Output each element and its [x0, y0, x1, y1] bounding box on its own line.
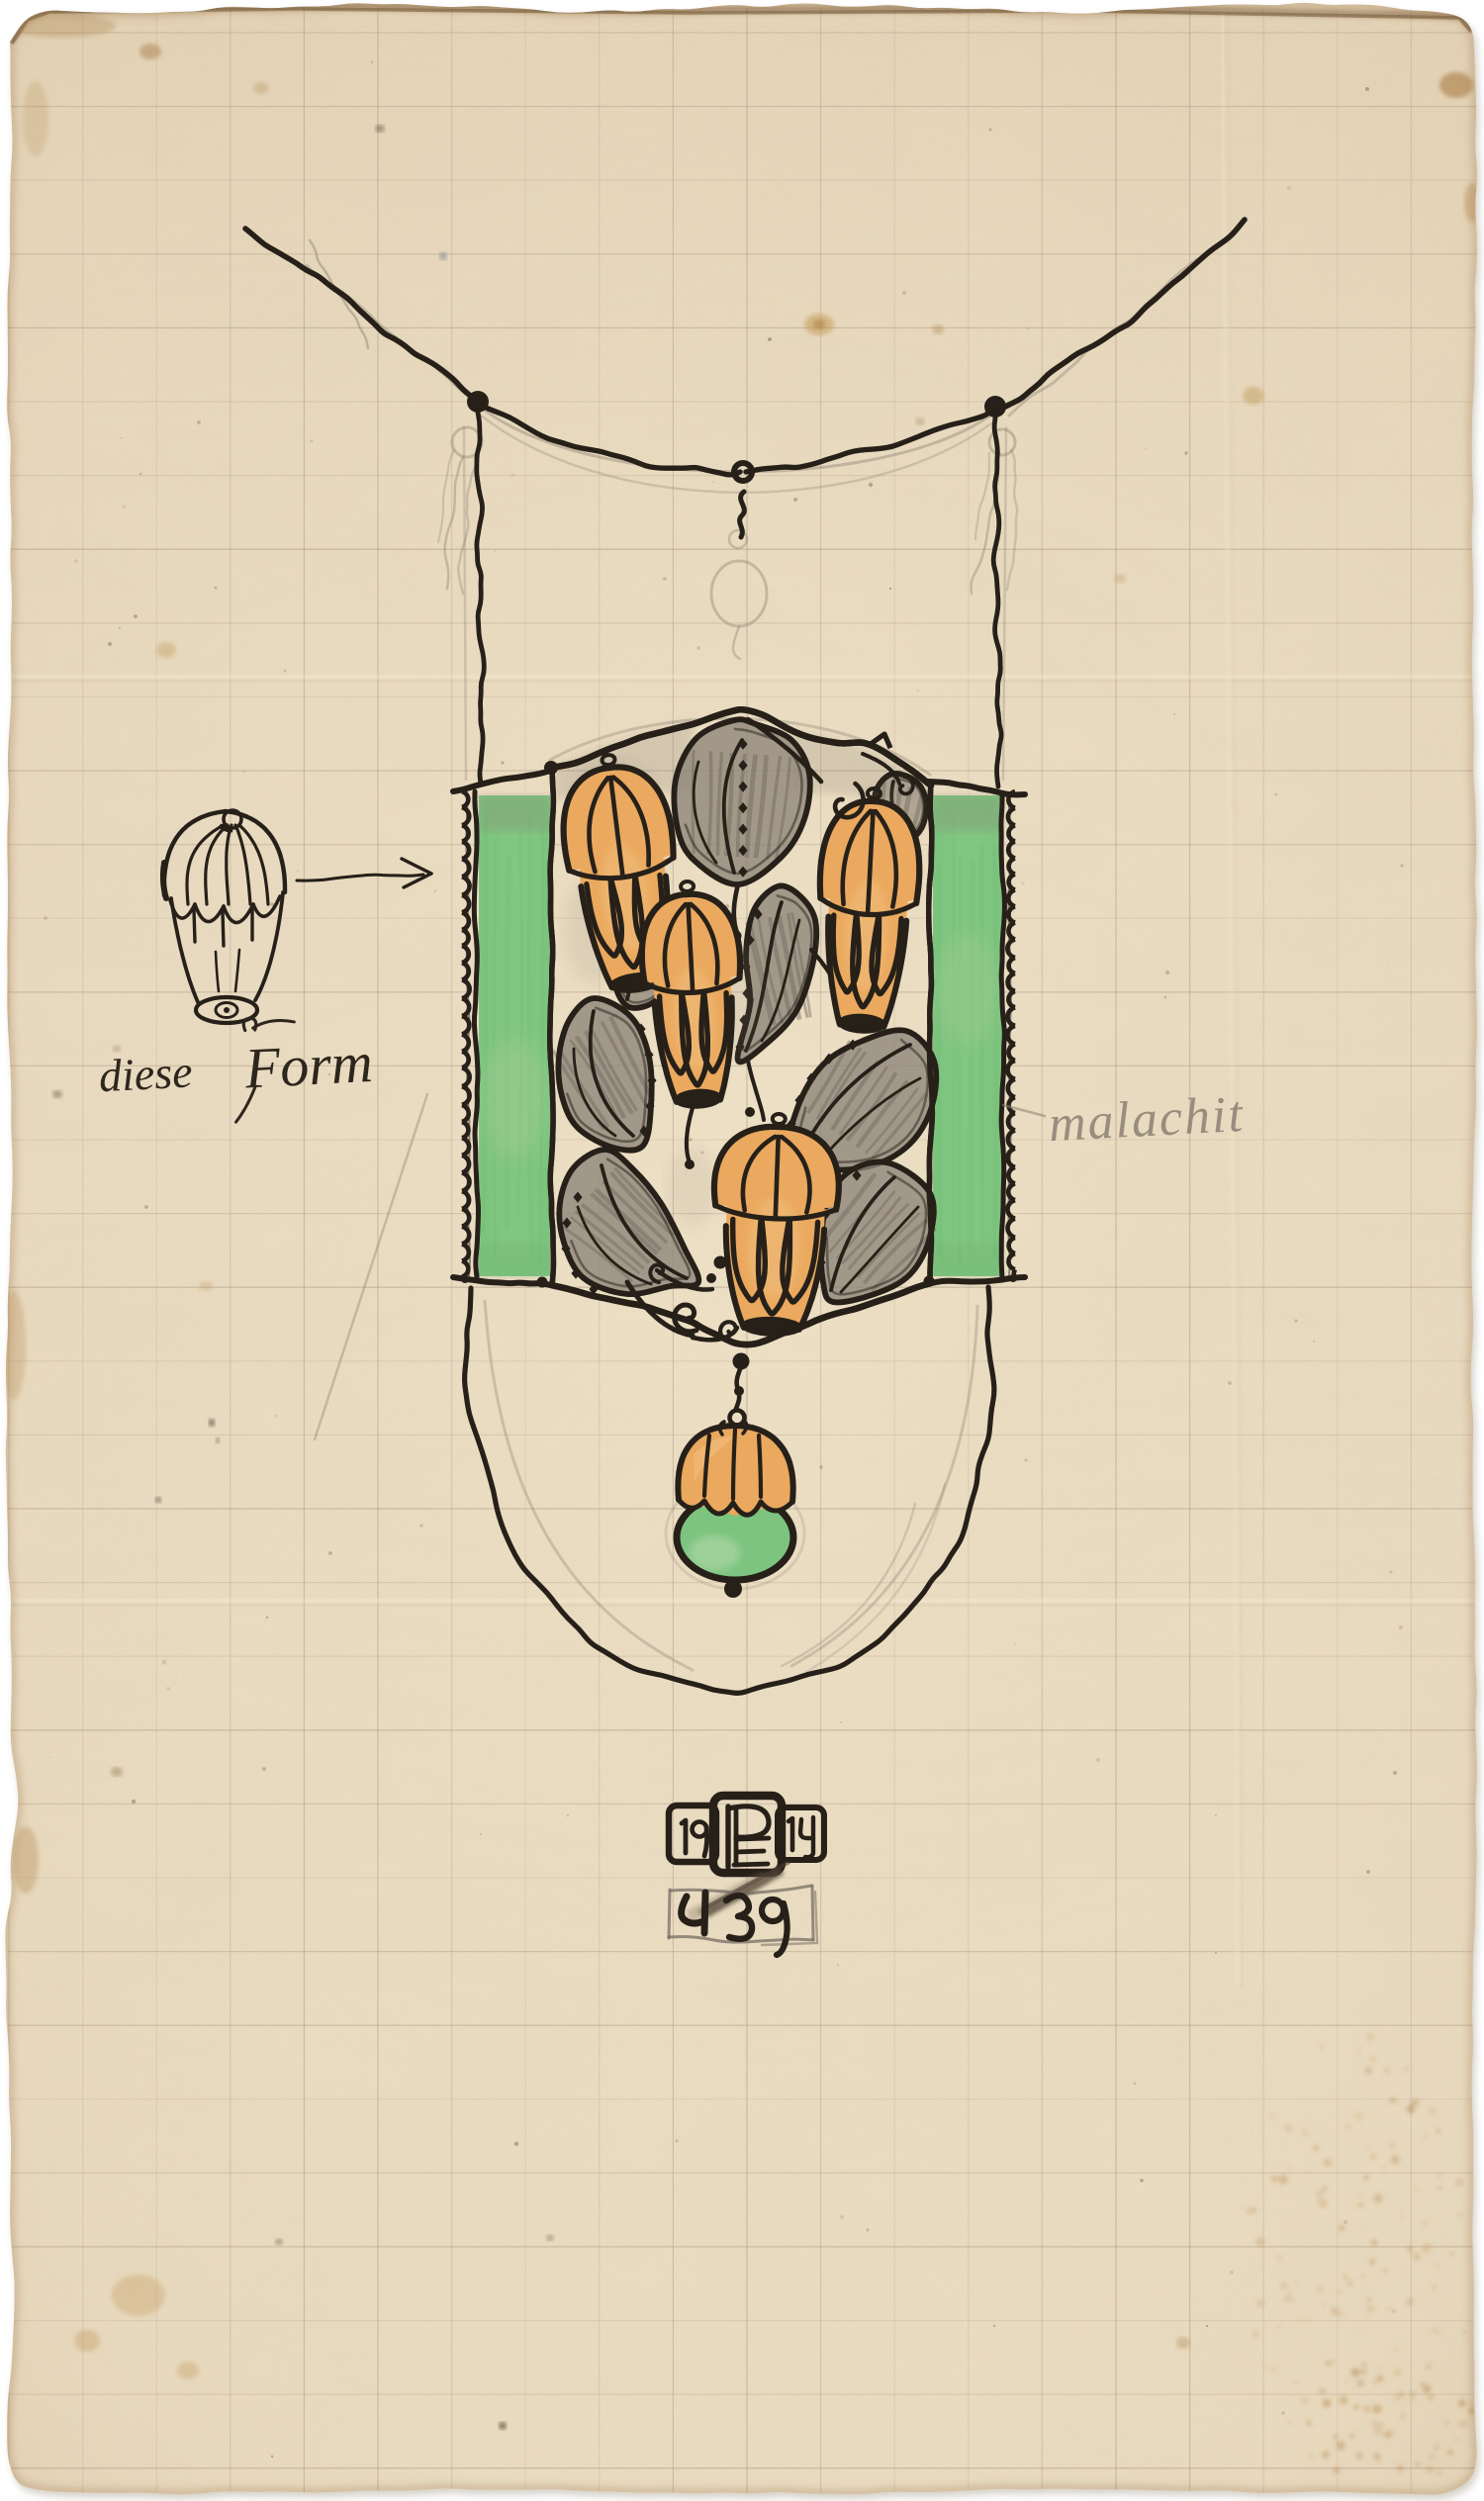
svg-text:malachit: malachit — [1047, 1086, 1246, 1153]
svg-text:Form: Form — [242, 1030, 374, 1101]
svg-text:diese: diese — [98, 1046, 194, 1101]
